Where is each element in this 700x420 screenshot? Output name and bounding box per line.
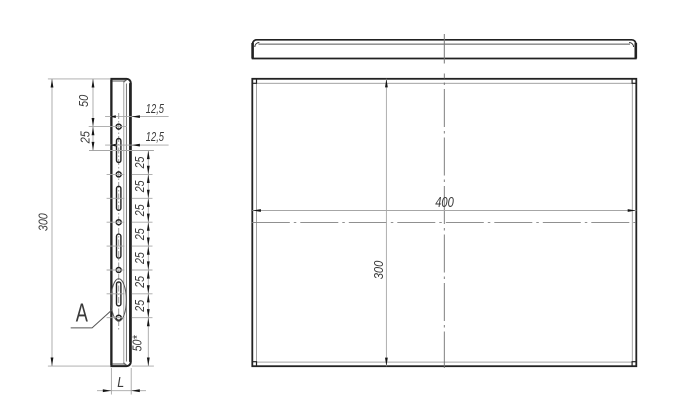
svg-text:300: 300 [371,260,386,279]
svg-text:A: A [76,298,88,327]
svg-text:50*: 50* [131,335,145,351]
svg-text:25: 25 [77,131,92,144]
svg-text:25: 25 [133,180,147,193]
svg-text:400: 400 [435,193,454,210]
svg-text:25: 25 [133,275,147,288]
svg-text:12,5: 12,5 [146,103,165,117]
svg-text:25: 25 [133,204,147,217]
svg-text:25: 25 [133,228,147,241]
svg-text:25: 25 [133,252,147,265]
svg-text:L: L [117,374,124,390]
svg-text:25: 25 [133,156,147,169]
svg-text:12,5: 12,5 [146,131,165,145]
svg-text:300: 300 [35,213,50,231]
svg-text:50: 50 [76,94,91,107]
svg-text:25: 25 [133,299,147,312]
